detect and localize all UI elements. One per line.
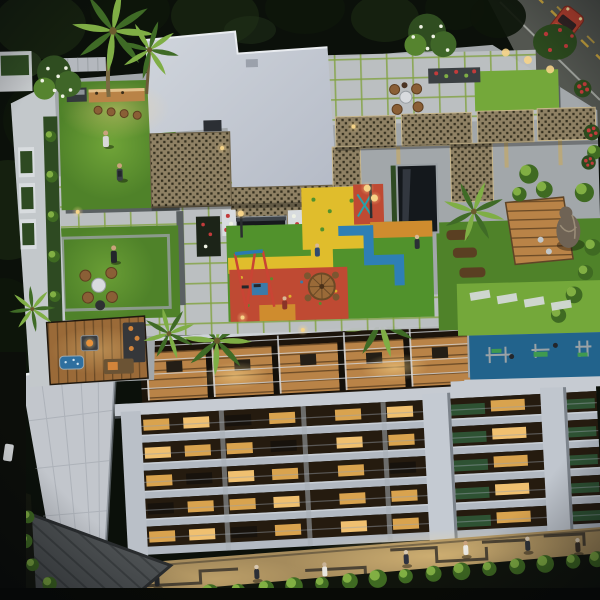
vignette-overlay [0, 0, 600, 600]
render-canvas [0, 0, 600, 600]
aerial-building-render [0, 0, 600, 600]
